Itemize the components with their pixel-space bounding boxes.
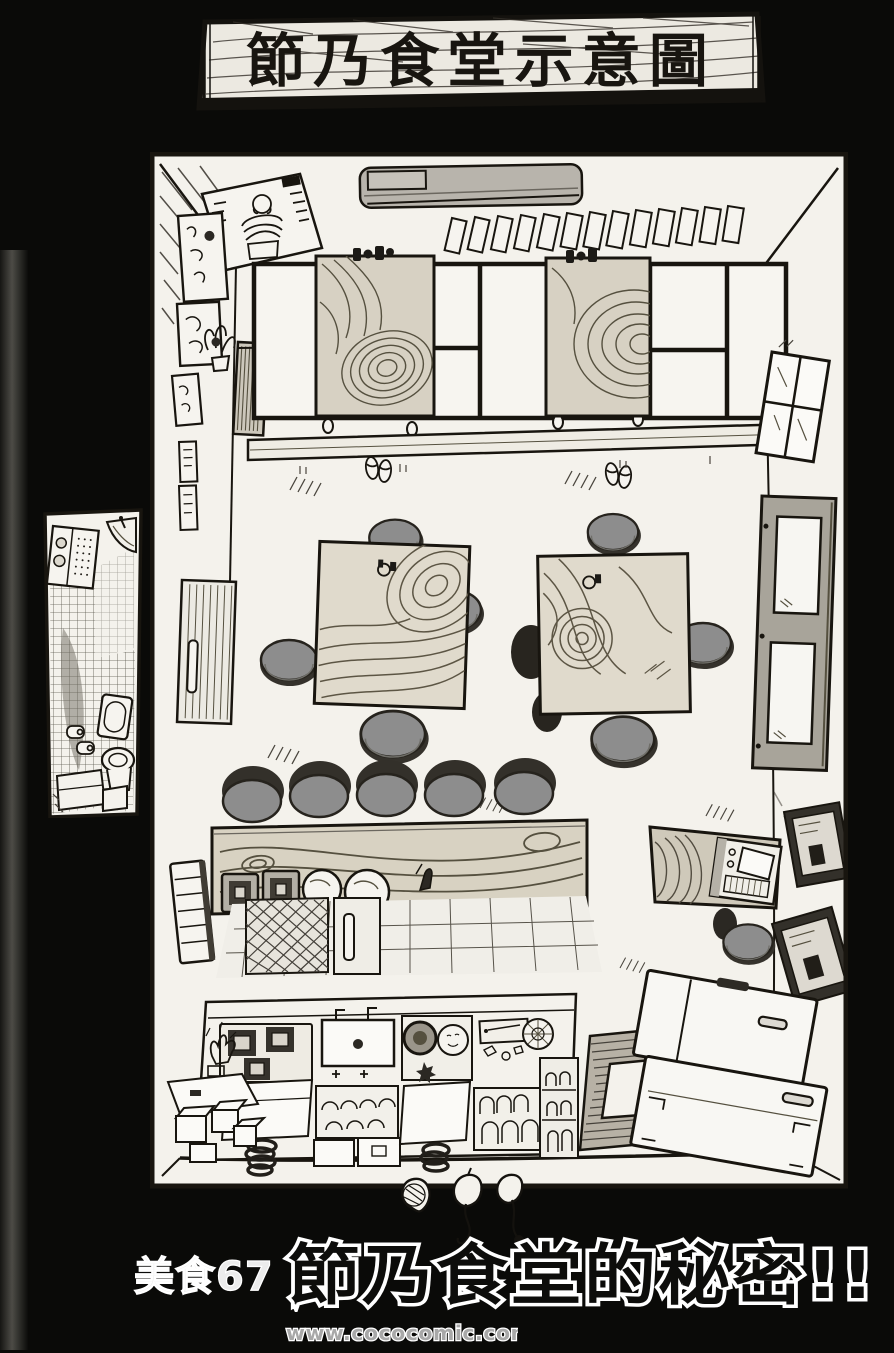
kitchen-small-door (334, 898, 380, 974)
chapter-title: 節乃食堂的秘密!! (288, 1237, 876, 1312)
round-stool (591, 717, 658, 769)
round-stool (494, 758, 556, 814)
dish-crate (314, 1086, 400, 1166)
low-table-left (316, 246, 442, 416)
tv-set (710, 838, 781, 904)
round-stool (587, 514, 641, 555)
round-stool (360, 711, 429, 764)
round-stool (222, 766, 284, 822)
title-banner: 節乃食堂示意圖 (193, 10, 773, 116)
dining-table-right (538, 554, 691, 715)
dish-shelf (474, 1088, 544, 1150)
round-stool (289, 761, 351, 817)
chapter-caption: 美食67 節乃食堂的秘密!! (120, 1212, 894, 1312)
back-door (753, 496, 836, 770)
kitchen-workbench (196, 994, 578, 1175)
round-stool (260, 640, 320, 686)
stove (220, 1024, 312, 1082)
watermark-text: www.cococomic.com (286, 1321, 518, 1345)
banner-title: 節乃食堂示意圖 (246, 27, 716, 95)
round-stool (356, 760, 418, 816)
round-stool (722, 924, 775, 964)
page-gutter-shading (0, 250, 30, 1350)
medicine-cabinet (47, 526, 99, 588)
chapter-number: 美食67 (134, 1254, 274, 1300)
watermark: www.cococomic.com (278, 1316, 518, 1350)
bathroom-panel (37, 508, 148, 818)
air-conditioner (360, 164, 583, 208)
entrance-sliding-door (177, 580, 236, 724)
manga-page: 節乃食堂示意圖 (0, 0, 894, 1353)
lattice-panel (246, 898, 328, 974)
bottle-shelf (540, 1058, 578, 1158)
floorplan-panel (150, 152, 848, 1252)
round-stool (424, 760, 486, 816)
